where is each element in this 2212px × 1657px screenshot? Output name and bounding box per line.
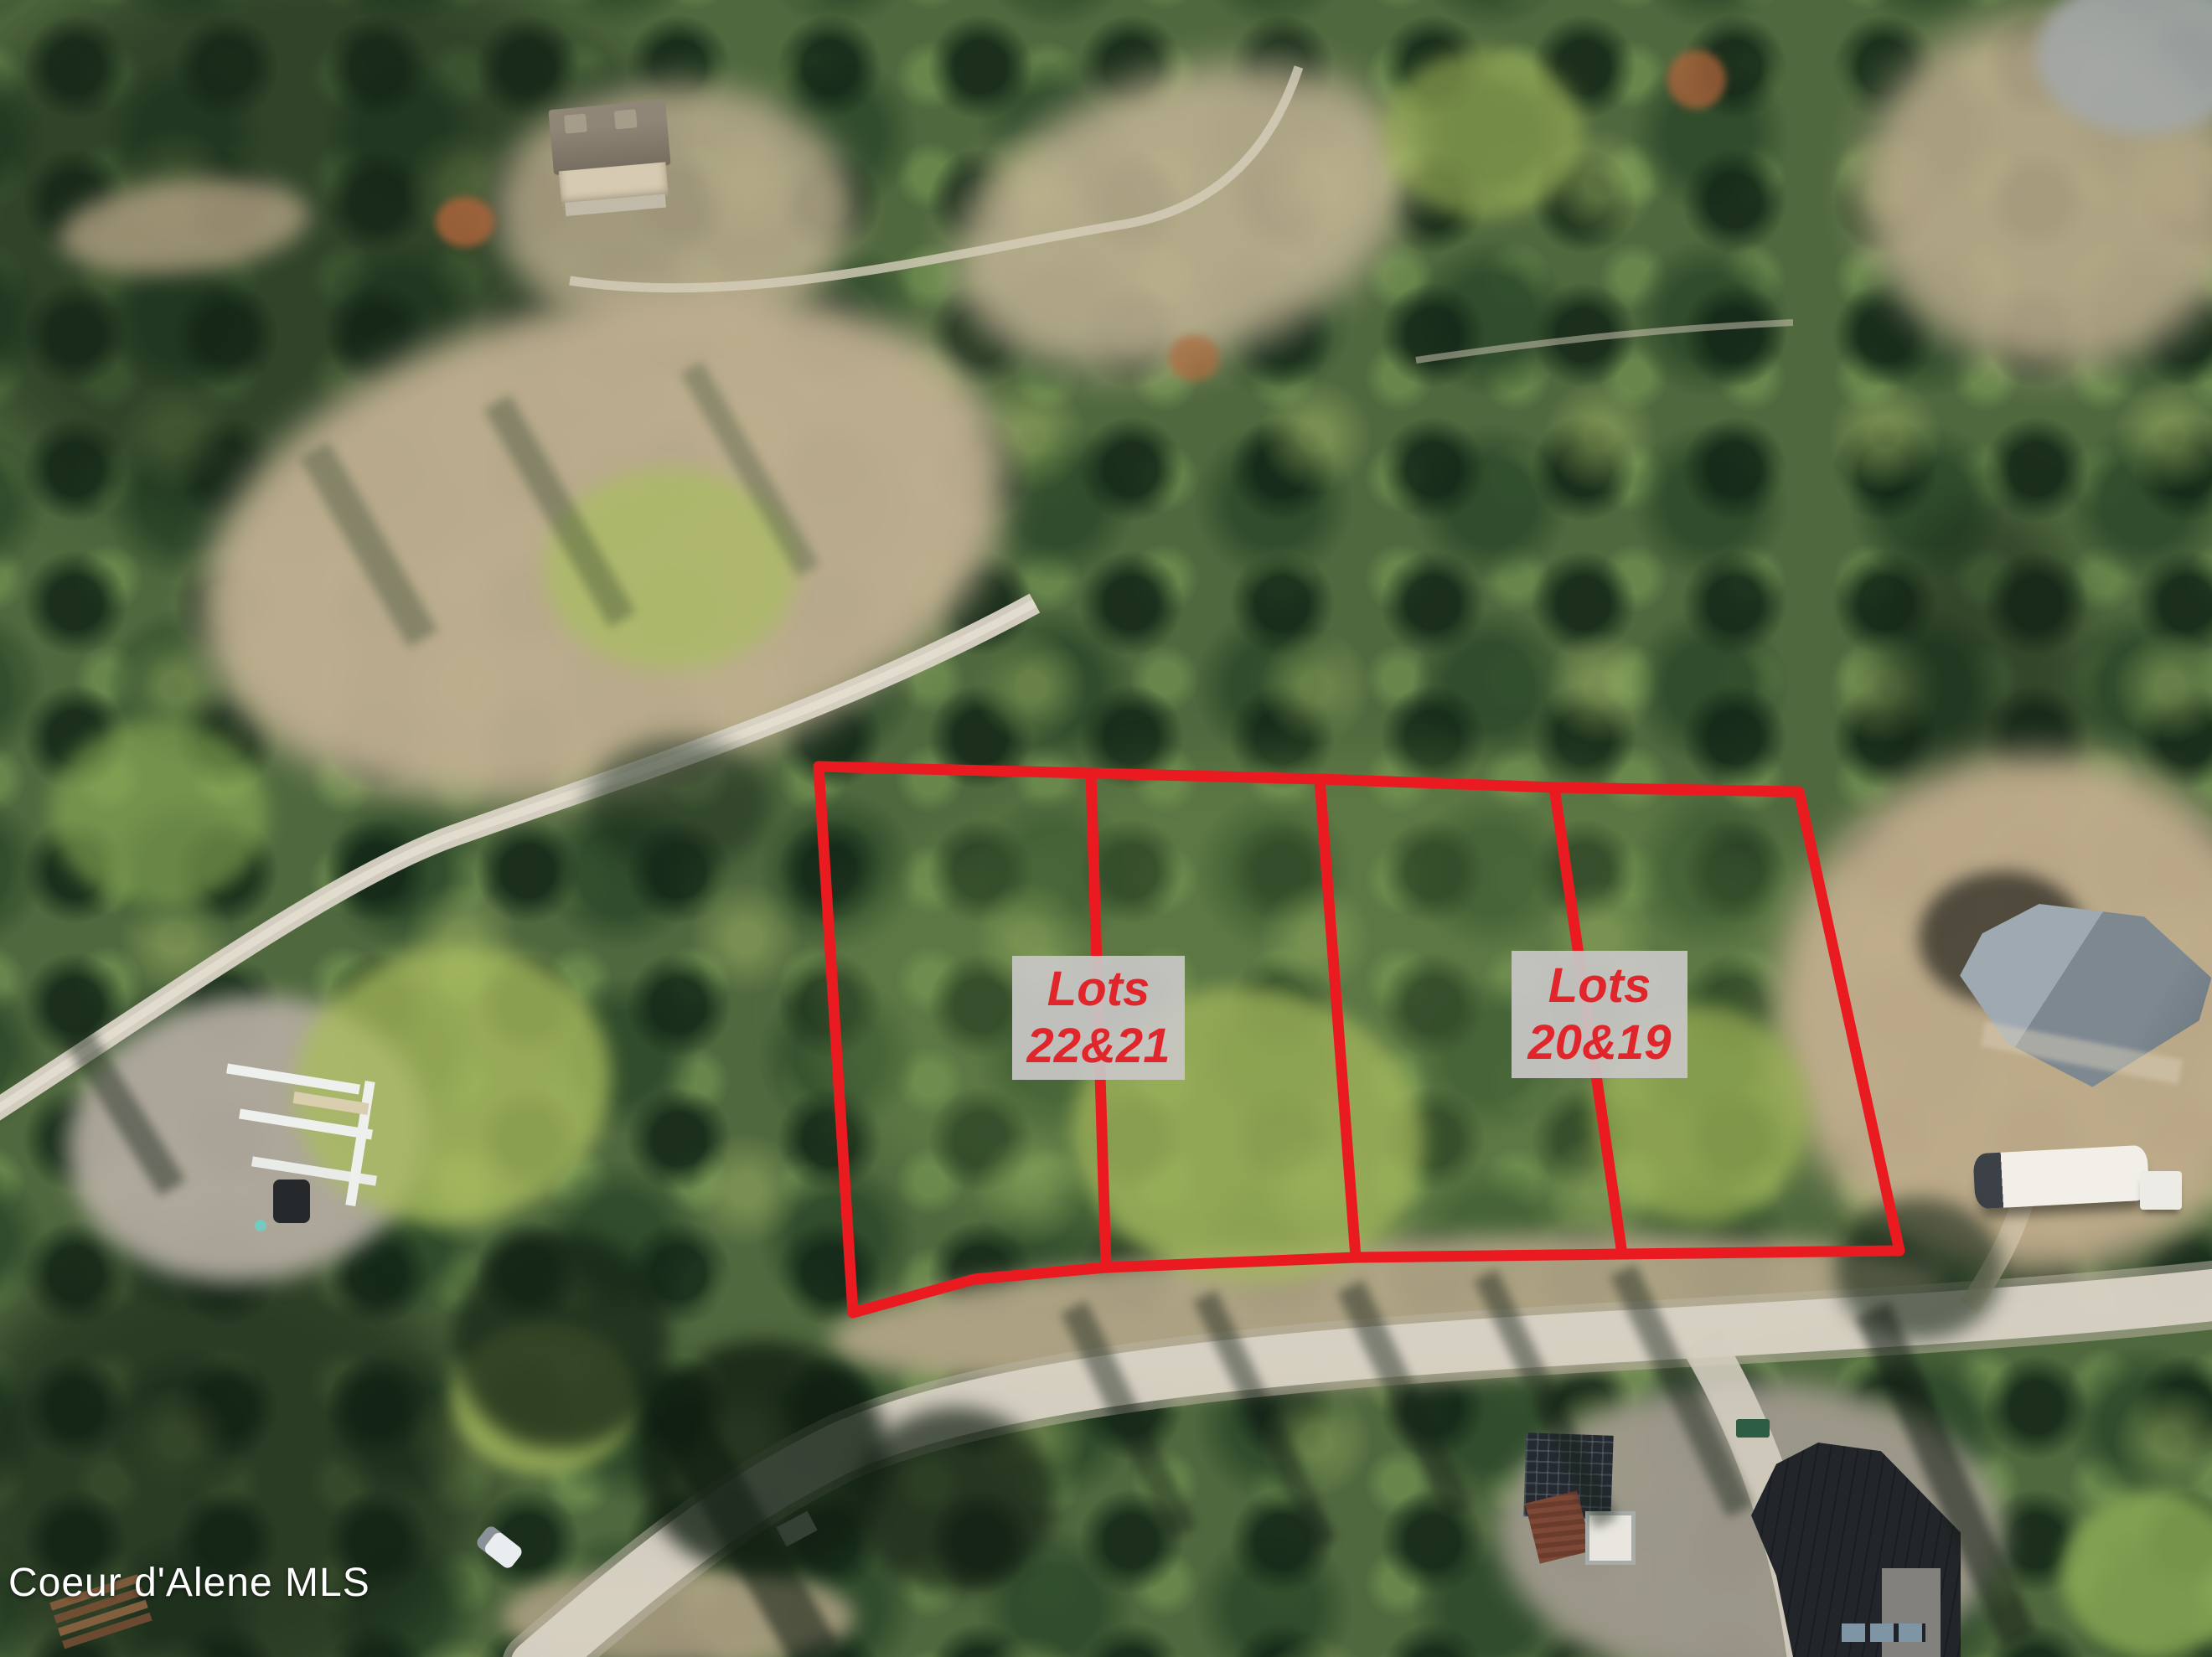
lot-label-line1: Lots [1012,961,1185,1018]
lot-label-22-21: Lots 22&21 [1012,956,1185,1080]
mls-watermark: Coeur d'Alene MLS [8,1560,370,1606]
lot-label-line1: Lots [1512,958,1687,1014]
lot-label-20-19: Lots 20&19 [1512,951,1687,1078]
lot-divider-line [1320,779,1356,1257]
lot-boundary-overlay [0,0,2212,1657]
lot-label-line2: 20&19 [1512,1014,1687,1071]
lot-label-line2: 22&21 [1012,1018,1185,1075]
aerial-photo-scene: Lots 22&21 Lots 20&19 Coeur d'Alene MLS [0,0,2212,1657]
